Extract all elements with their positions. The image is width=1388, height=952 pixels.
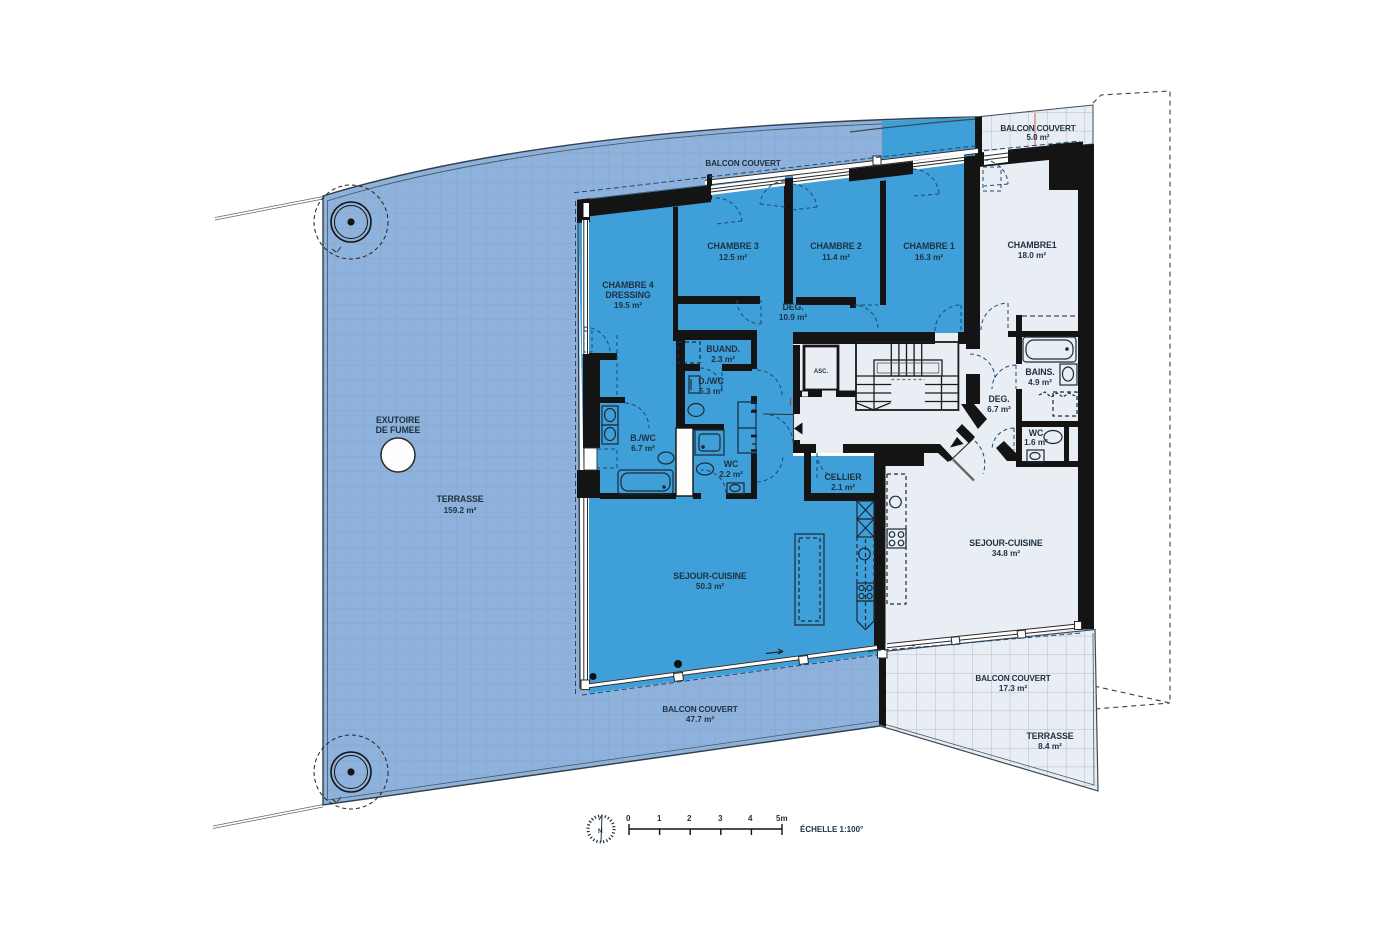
svg-text:47.7 m²: 47.7 m² <box>686 715 714 724</box>
svg-text:BUAND.: BUAND. <box>706 344 740 354</box>
svg-text:BAINS.: BAINS. <box>1025 367 1054 377</box>
svg-text:5.3 m²: 5.3 m² <box>699 387 723 396</box>
svg-text:2: 2 <box>687 814 692 823</box>
svg-text:18.0 m²: 18.0 m² <box>1018 251 1046 260</box>
svg-text:16.3 m²: 16.3 m² <box>915 253 943 262</box>
svg-text:3: 3 <box>718 814 723 823</box>
svg-text:BALCON COUVERT: BALCON COUVERT <box>705 159 780 168</box>
svg-text:1.6 m²: 1.6 m² <box>1024 438 1048 447</box>
svg-text:CHAMBRE 2: CHAMBRE 2 <box>810 241 862 251</box>
svg-text:12.5 m²: 12.5 m² <box>719 253 747 262</box>
svg-text:CHAMBRE 3: CHAMBRE 3 <box>707 241 759 251</box>
svg-text:TERRASSE: TERRASSE <box>1026 731 1073 741</box>
svg-text:6.7 m²: 6.7 m² <box>631 444 655 453</box>
svg-text:4.9 m²: 4.9 m² <box>1028 378 1052 387</box>
svg-text:CHAMBRE 1: CHAMBRE 1 <box>903 241 955 251</box>
svg-text:CHAMBRE 4: CHAMBRE 4 <box>602 280 654 290</box>
svg-text:ÉCHELLE 1:100°: ÉCHELLE 1:100° <box>800 825 863 834</box>
svg-text:50.3 m²: 50.3 m² <box>696 582 724 591</box>
svg-text:BALCON COUVERT: BALCON COUVERT <box>1000 124 1075 133</box>
svg-text:2.3 m²: 2.3 m² <box>711 355 735 364</box>
svg-text:34.8 m²: 34.8 m² <box>992 549 1020 558</box>
svg-text:5m: 5m <box>776 814 788 823</box>
svg-text:DEG.: DEG. <box>782 302 803 312</box>
svg-text:WC: WC <box>1029 428 1044 438</box>
svg-text:10.9 m²: 10.9 m² <box>779 313 807 322</box>
svg-text:DE FUMEE: DE FUMEE <box>376 425 421 435</box>
svg-text:CELLIER: CELLIER <box>825 472 863 482</box>
svg-text:N: N <box>598 828 603 835</box>
svg-text:6.7 m²: 6.7 m² <box>987 405 1011 414</box>
svg-text:DEG.: DEG. <box>988 394 1009 404</box>
svg-text:159.2 m²: 159.2 m² <box>444 506 477 515</box>
svg-text:BALCON COUVERT: BALCON COUVERT <box>662 705 737 714</box>
svg-text:1: 1 <box>657 814 662 823</box>
svg-text:ASC.: ASC. <box>814 369 829 375</box>
svg-text:2.1 m²: 2.1 m² <box>831 483 855 492</box>
svg-text:B./WC: B./WC <box>630 433 656 443</box>
svg-text:BALCON COUVERT: BALCON COUVERT <box>975 674 1050 683</box>
svg-text:DRESSING: DRESSING <box>605 290 650 300</box>
svg-text:D./WC: D./WC <box>698 376 724 386</box>
svg-text:EXUTOIRE: EXUTOIRE <box>376 415 420 425</box>
svg-text:0: 0 <box>626 814 631 823</box>
svg-text:WC: WC <box>724 459 739 469</box>
svg-text:SEJOUR-CUISINE: SEJOUR-CUISINE <box>969 538 1043 548</box>
svg-text:19.5 m²: 19.5 m² <box>614 301 642 310</box>
svg-text:SEJOUR-CUISINE: SEJOUR-CUISINE <box>673 571 747 581</box>
svg-text:5.0 m²: 5.0 m² <box>1026 133 1049 142</box>
svg-text:TERRASSE: TERRASSE <box>436 494 483 504</box>
svg-text:4: 4 <box>748 814 753 823</box>
svg-text:8.4 m²: 8.4 m² <box>1038 742 1062 751</box>
svg-text:CHAMBRE1: CHAMBRE1 <box>1007 240 1056 250</box>
svg-text:17.3 m²: 17.3 m² <box>999 684 1027 693</box>
svg-text:2.2 m²: 2.2 m² <box>719 470 743 479</box>
svg-text:11.4 m²: 11.4 m² <box>822 253 850 262</box>
